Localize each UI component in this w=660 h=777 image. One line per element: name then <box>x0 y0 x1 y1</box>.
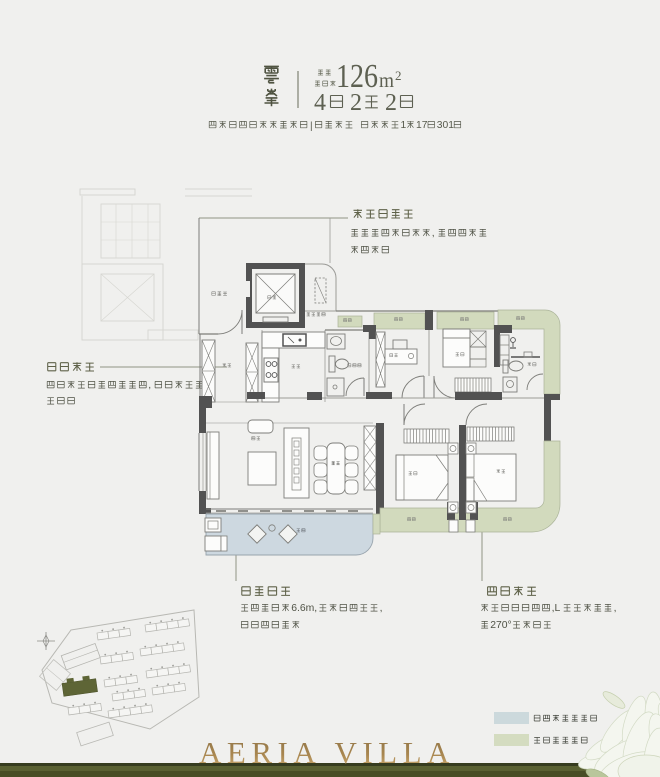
svg-text:301: 301 <box>437 120 454 131</box>
svg-text:6.6m,: 6.6m, <box>291 603 317 614</box>
svg-text:,: , <box>148 380 151 391</box>
svg-text:270°: 270° <box>490 620 512 631</box>
svg-text:,L: ,L <box>552 603 561 614</box>
svg-text:2: 2 <box>395 68 402 83</box>
svg-text:,: , <box>614 603 617 614</box>
svg-text:2: 2 <box>385 90 397 116</box>
svg-text:,: , <box>380 603 383 614</box>
svg-text:17: 17 <box>416 120 428 131</box>
svg-text:1: 1 <box>401 120 407 131</box>
svg-text:,: , <box>432 228 435 239</box>
svg-text:4: 4 <box>314 90 326 116</box>
svg-text:AERIA VILLA: AERIA VILLA <box>199 735 455 770</box>
svg-text:|: | <box>310 121 313 132</box>
svg-text:2: 2 <box>350 90 362 116</box>
svg-text:m: m <box>379 70 394 92</box>
